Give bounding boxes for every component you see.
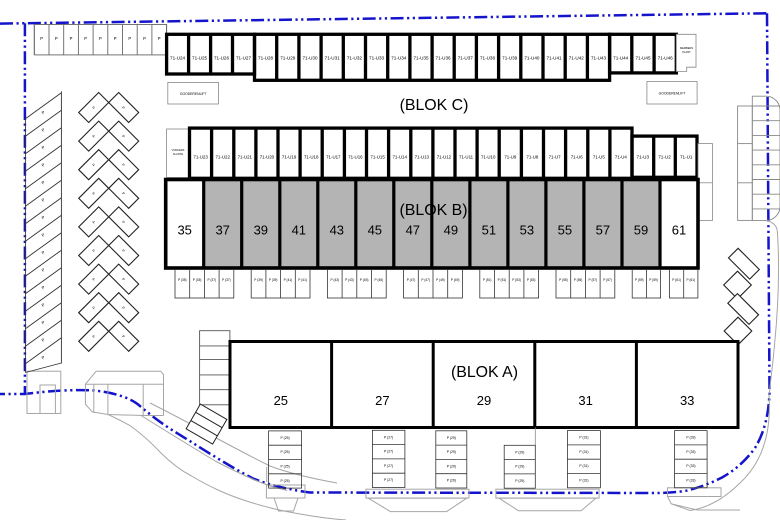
- svg-text:39: 39: [254, 223, 268, 238]
- svg-text:71-U8: 71-U8: [526, 155, 539, 160]
- svg-text:P: P: [41, 285, 46, 291]
- svg-text:P (29): P (29): [515, 465, 524, 469]
- svg-text:P (45): P (45): [374, 278, 383, 282]
- svg-text:71-U44: 71-U44: [613, 56, 629, 61]
- svg-text:P (29): P (29): [447, 450, 456, 454]
- svg-text:GOODERENLIFT: GOODERENLIFT: [180, 92, 207, 96]
- svg-text:71-U17: 71-U17: [326, 155, 341, 160]
- svg-text:P (41): P (41): [284, 278, 293, 282]
- svg-text:P: P: [41, 197, 46, 203]
- svg-text:71-U4: 71-U4: [615, 155, 628, 160]
- svg-text:P: P: [41, 110, 46, 116]
- svg-text:71-U26: 71-U26: [214, 56, 230, 61]
- svg-text:71-U37: 71-U37: [458, 56, 474, 61]
- svg-text:47: 47: [406, 223, 420, 238]
- svg-text:71-U39: 71-U39: [502, 56, 518, 61]
- svg-text:P (31): P (31): [579, 450, 588, 454]
- svg-text:P (33): P (33): [686, 436, 695, 440]
- svg-text:GOODERENLIFT: GOODERENLIFT: [659, 92, 686, 96]
- svg-text:P (57): P (57): [588, 278, 597, 282]
- svg-text:35: 35: [177, 223, 191, 238]
- svg-text:71-U41: 71-U41: [547, 56, 563, 61]
- svg-text:P (39): P (39): [269, 278, 278, 282]
- svg-text:P: P: [41, 320, 46, 326]
- svg-text:VONKERS: VONKERS: [172, 148, 185, 152]
- svg-text:P (41): P (41): [298, 278, 307, 282]
- svg-text:27: 27: [375, 393, 389, 408]
- svg-text:71-U20: 71-U20: [260, 155, 275, 160]
- svg-text:P (25): P (25): [281, 436, 290, 440]
- svg-text:71-U43: 71-U43: [591, 56, 607, 61]
- svg-text:P: P: [70, 36, 73, 41]
- svg-text:P (57): P (57): [603, 278, 612, 282]
- svg-text:P (61): P (61): [672, 278, 681, 282]
- svg-text:P (45): P (45): [360, 278, 369, 282]
- svg-text:P (25): P (25): [281, 465, 290, 469]
- svg-text:71-U46: 71-U46: [658, 56, 674, 61]
- svg-text:P (29): P (29): [447, 464, 456, 468]
- svg-text:P (55): P (55): [559, 278, 568, 282]
- svg-text:P (31): P (31): [579, 436, 588, 440]
- svg-text:37: 37: [215, 223, 229, 238]
- svg-text:71-U35: 71-U35: [413, 56, 429, 61]
- svg-text:P (53): P (53): [527, 278, 536, 282]
- svg-text:PLANT: PLANT: [682, 50, 691, 54]
- svg-text:P: P: [84, 36, 87, 41]
- svg-text:71-U23: 71-U23: [193, 155, 208, 160]
- svg-text:P (59): P (59): [635, 278, 644, 282]
- svg-text:71-U1: 71-U1: [680, 155, 693, 160]
- svg-text:P: P: [99, 36, 102, 41]
- svg-text:71-U5: 71-U5: [593, 155, 606, 160]
- svg-text:P: P: [41, 355, 46, 361]
- svg-text:71-U3: 71-U3: [637, 155, 650, 160]
- svg-text:43: 43: [330, 223, 344, 238]
- svg-text:P: P: [41, 127, 46, 133]
- svg-text:71-U18: 71-U18: [304, 155, 319, 160]
- svg-text:MEMBERS: MEMBERS: [680, 46, 693, 50]
- svg-text:P (47): P (47): [407, 278, 416, 282]
- svg-text:P (27): P (27): [384, 450, 393, 454]
- svg-text:P: P: [41, 302, 46, 308]
- svg-text:P (33): P (33): [686, 450, 695, 454]
- svg-text:P (35): P (35): [178, 278, 187, 282]
- svg-text:P (27): P (27): [384, 464, 393, 468]
- svg-text:71-U40: 71-U40: [524, 56, 540, 61]
- svg-text:P (43): P (43): [345, 278, 354, 282]
- svg-text:P (61): P (61): [686, 278, 695, 282]
- svg-text:P (53): P (53): [512, 278, 521, 282]
- svg-text:71-U42: 71-U42: [569, 56, 585, 61]
- svg-text:KLANTE: KLANTE: [173, 152, 183, 156]
- svg-text:71-U16: 71-U16: [348, 155, 363, 160]
- svg-text:55: 55: [558, 223, 572, 238]
- svg-text:P (59): P (59): [649, 278, 658, 282]
- svg-text:71-U31: 71-U31: [325, 56, 341, 61]
- svg-text:71-U6: 71-U6: [571, 155, 584, 160]
- svg-text:(BLOK A): (BLOK A): [451, 364, 518, 381]
- svg-text:71-U14: 71-U14: [392, 155, 407, 160]
- svg-text:71-U33: 71-U33: [369, 56, 385, 61]
- svg-text:71-U24: 71-U24: [170, 56, 186, 61]
- svg-text:49: 49: [444, 223, 458, 238]
- svg-text:P (27): P (27): [384, 478, 393, 482]
- svg-text:51: 51: [482, 223, 496, 238]
- svg-text:71-U38: 71-U38: [480, 56, 496, 61]
- svg-text:P (37): P (37): [222, 278, 231, 282]
- svg-text:P (33): P (33): [686, 464, 695, 468]
- svg-text:71-U34: 71-U34: [391, 56, 407, 61]
- svg-text:P (29): P (29): [515, 479, 524, 483]
- svg-text:29: 29: [477, 393, 491, 408]
- svg-text:P (51): P (51): [483, 278, 492, 282]
- svg-text:59: 59: [634, 223, 648, 238]
- svg-text:71-U28: 71-U28: [258, 56, 274, 61]
- svg-text:71-U15: 71-U15: [370, 155, 385, 160]
- svg-text:P (49): P (49): [451, 278, 460, 282]
- svg-text:P: P: [55, 36, 58, 41]
- svg-text:(BLOK C): (BLOK C): [400, 97, 469, 114]
- svg-text:45: 45: [368, 223, 382, 238]
- svg-text:71-U27: 71-U27: [236, 56, 252, 61]
- svg-text:P: P: [40, 36, 43, 41]
- svg-text:P (29): P (29): [447, 479, 456, 483]
- svg-text:61: 61: [672, 223, 686, 238]
- svg-text:P (31): P (31): [579, 464, 588, 468]
- svg-text:71-U9: 71-U9: [504, 155, 517, 160]
- svg-text:31: 31: [578, 393, 592, 408]
- svg-text:57: 57: [596, 223, 610, 238]
- svg-text:P: P: [114, 36, 117, 41]
- svg-text:P (29): P (29): [515, 450, 524, 454]
- svg-text:P (55): P (55): [574, 278, 583, 282]
- svg-text:P: P: [41, 250, 46, 256]
- svg-text:41: 41: [292, 223, 306, 238]
- svg-text:P (27): P (27): [384, 435, 393, 439]
- svg-text:71-U13: 71-U13: [415, 155, 430, 160]
- svg-text:P: P: [41, 180, 46, 186]
- svg-text:71-U29: 71-U29: [280, 56, 296, 61]
- svg-text:P: P: [158, 36, 161, 41]
- svg-text:71-U7: 71-U7: [549, 155, 562, 160]
- svg-text:P (33): P (33): [686, 479, 695, 483]
- svg-text:P: P: [128, 36, 131, 41]
- svg-text:P (37): P (37): [207, 278, 216, 282]
- svg-text:71-U32: 71-U32: [347, 56, 363, 61]
- svg-text:P (43): P (43): [330, 278, 339, 282]
- svg-text:P (35): P (35): [193, 278, 202, 282]
- svg-text:P: P: [41, 267, 46, 273]
- svg-text:71-U11: 71-U11: [459, 155, 474, 160]
- svg-text:53: 53: [520, 223, 534, 238]
- svg-text:P: P: [41, 162, 46, 168]
- svg-text:71-U25: 71-U25: [192, 56, 208, 61]
- svg-text:71-U45: 71-U45: [635, 56, 651, 61]
- svg-text:P (25): P (25): [281, 479, 290, 483]
- svg-text:71-U12: 71-U12: [437, 155, 452, 160]
- svg-text:P (47): P (47): [421, 278, 430, 282]
- svg-text:71-U22: 71-U22: [215, 155, 230, 160]
- svg-text:P (29): P (29): [447, 436, 456, 440]
- svg-text:71-U19: 71-U19: [282, 155, 297, 160]
- svg-text:P: P: [41, 215, 46, 221]
- svg-text:P (49): P (49): [436, 278, 445, 282]
- svg-text:71-U30: 71-U30: [302, 56, 318, 61]
- svg-text:25: 25: [274, 393, 288, 408]
- svg-text:(BLOK B): (BLOK B): [400, 202, 468, 219]
- svg-text:71-U10: 71-U10: [481, 155, 496, 160]
- svg-text:P (31): P (31): [579, 479, 588, 483]
- svg-text:P (51): P (51): [498, 278, 507, 282]
- svg-text:P (25): P (25): [281, 450, 290, 454]
- svg-text:P: P: [143, 36, 146, 41]
- svg-text:P (39): P (39): [254, 278, 263, 282]
- svg-text:P: P: [41, 232, 46, 238]
- svg-text:71-U36: 71-U36: [436, 56, 452, 61]
- svg-text:71-U21: 71-U21: [238, 155, 253, 160]
- svg-text:P: P: [41, 145, 46, 151]
- svg-text:71-U2: 71-U2: [658, 155, 671, 160]
- svg-text:33: 33: [680, 393, 694, 408]
- svg-text:P: P: [41, 337, 46, 343]
